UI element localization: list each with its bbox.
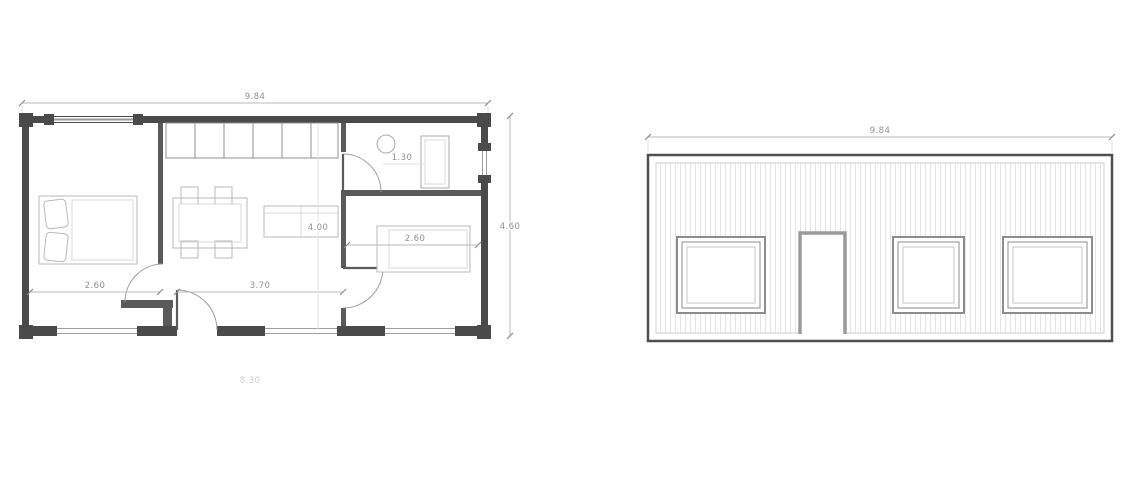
partition-bath-bedroom2	[341, 190, 481, 196]
bathroom-door-swing-arc	[343, 154, 381, 192]
plan-footer-note: 8.30	[240, 376, 261, 386]
bathroom-fixtures	[377, 135, 449, 188]
window-top-bedroom-glass	[52, 119, 135, 121]
pier-top-right	[477, 113, 491, 127]
vestibule-wall-vertical	[163, 300, 172, 326]
drawing-svg: 9.84 4.60	[0, 0, 1138, 489]
front-elevation: 9.84	[645, 126, 1115, 341]
elevation-window-1	[677, 237, 765, 313]
partition-living-bedroom2-lower	[341, 308, 346, 326]
plan-dimension-total-depth: 4.60	[500, 113, 521, 339]
wall-bottom-seg1	[22, 326, 57, 336]
bedroom1-door-swing-arc	[125, 264, 163, 302]
entrance-door-swing-arc	[177, 290, 217, 330]
wall-bottom-seg2	[137, 326, 177, 336]
bed-bedroom1	[39, 196, 137, 264]
wall-bottom-seg3	[217, 326, 265, 336]
wall-bottom-seg4	[337, 326, 385, 336]
elevation-door	[800, 233, 845, 334]
plan-dim-total-width-label: 9.84	[245, 92, 266, 102]
architectural-drawing-sheet: 9.84 4.60	[0, 0, 1138, 489]
plan-dim-hall-width-label: 3.70	[250, 281, 271, 291]
wall-bottom-seg5	[455, 326, 488, 336]
window-right-jamb-bottom	[478, 175, 491, 183]
plan-dim-bedroom-width-label: 2.60	[85, 281, 106, 291]
bed1-outline	[39, 196, 137, 264]
chair-top-right	[215, 187, 232, 204]
window-top-jamb-right	[133, 114, 143, 125]
kitchen-counter-outline	[166, 123, 338, 158]
floor-plan: 9.84 4.60	[19, 92, 520, 386]
plan-dim-bedroom2-width-label: 2.60	[405, 234, 426, 244]
bedroom2-door-swing-arc	[343, 268, 383, 308]
bed-bedroom2	[377, 226, 470, 272]
pier-top-left	[19, 113, 33, 127]
window-top-jamb-left	[44, 114, 54, 125]
elevation-window-3	[1003, 237, 1092, 313]
elevation-window-2-frame	[893, 237, 964, 313]
elevation-window-3-frame	[1003, 237, 1092, 313]
dining-set	[173, 187, 247, 258]
plan-dim-bathroom-width-label: 1.30	[392, 153, 413, 163]
elevation-window-2	[893, 237, 964, 313]
plan-dim-total-depth-label: 4.60	[500, 222, 521, 232]
chair-bottom-left	[181, 241, 198, 258]
chair-bottom-right	[215, 241, 232, 258]
window-right-jamb-top	[478, 143, 491, 151]
partition-bedroom-living	[158, 123, 163, 264]
elevation-dimension-total-width: 9.84	[645, 126, 1115, 152]
dining-table-inner	[179, 204, 241, 242]
plan-dimension-total-width: 9.84	[19, 92, 491, 113]
elevation-window-1-frame	[677, 237, 765, 313]
elevation-dim-total-width-label: 9.84	[870, 126, 891, 136]
kitchen-counter	[166, 123, 338, 158]
partition-living-bath-upper	[341, 123, 346, 152]
chair-top-left	[181, 187, 198, 204]
bed2-outline	[377, 226, 470, 272]
sink-basin	[377, 135, 395, 153]
wall-left	[22, 116, 29, 336]
partition-living-bedroom2	[341, 192, 346, 268]
plan-dim-interior-depth-label: 4.00	[308, 223, 329, 233]
